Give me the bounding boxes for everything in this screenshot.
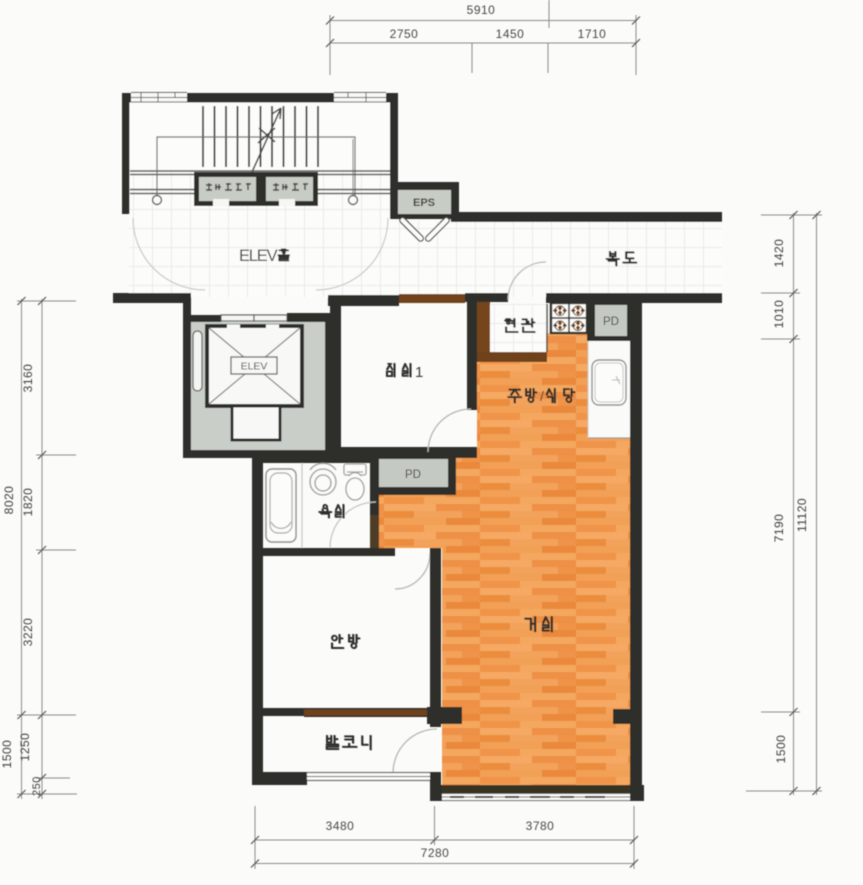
svg-text:7280: 7280	[421, 846, 450, 860]
svg-text:1420: 1420	[772, 239, 786, 268]
svg-text:3220: 3220	[21, 618, 35, 647]
svg-text:1010: 1010	[772, 300, 786, 329]
svg-text:3780: 3780	[526, 819, 555, 833]
svg-text:2750: 2750	[390, 27, 419, 41]
svg-text:3480: 3480	[326, 819, 355, 833]
svg-text:PD: PD	[603, 316, 619, 328]
svg-text:250: 250	[31, 776, 43, 796]
svg-text:11120: 11120	[795, 498, 809, 532]
svg-text:5910: 5910	[467, 3, 496, 17]
svg-text:1500: 1500	[0, 740, 14, 769]
svg-text:1500: 1500	[774, 735, 788, 764]
svg-text:ELEV: ELEV	[239, 247, 278, 265]
svg-text:1250: 1250	[18, 733, 32, 762]
svg-text:ELEV: ELEV	[241, 361, 268, 373]
svg-text:7190: 7190	[772, 514, 786, 543]
svg-text:PD: PD	[405, 469, 421, 481]
svg-text:EPS: EPS	[413, 197, 435, 209]
svg-text:1820: 1820	[21, 488, 35, 517]
svg-text:1450: 1450	[496, 27, 525, 41]
svg-text:1: 1	[415, 364, 423, 381]
svg-text:/: /	[540, 388, 544, 404]
svg-text:3160: 3160	[21, 364, 35, 393]
svg-text:1710: 1710	[578, 27, 607, 41]
svg-text:8020: 8020	[2, 486, 16, 515]
